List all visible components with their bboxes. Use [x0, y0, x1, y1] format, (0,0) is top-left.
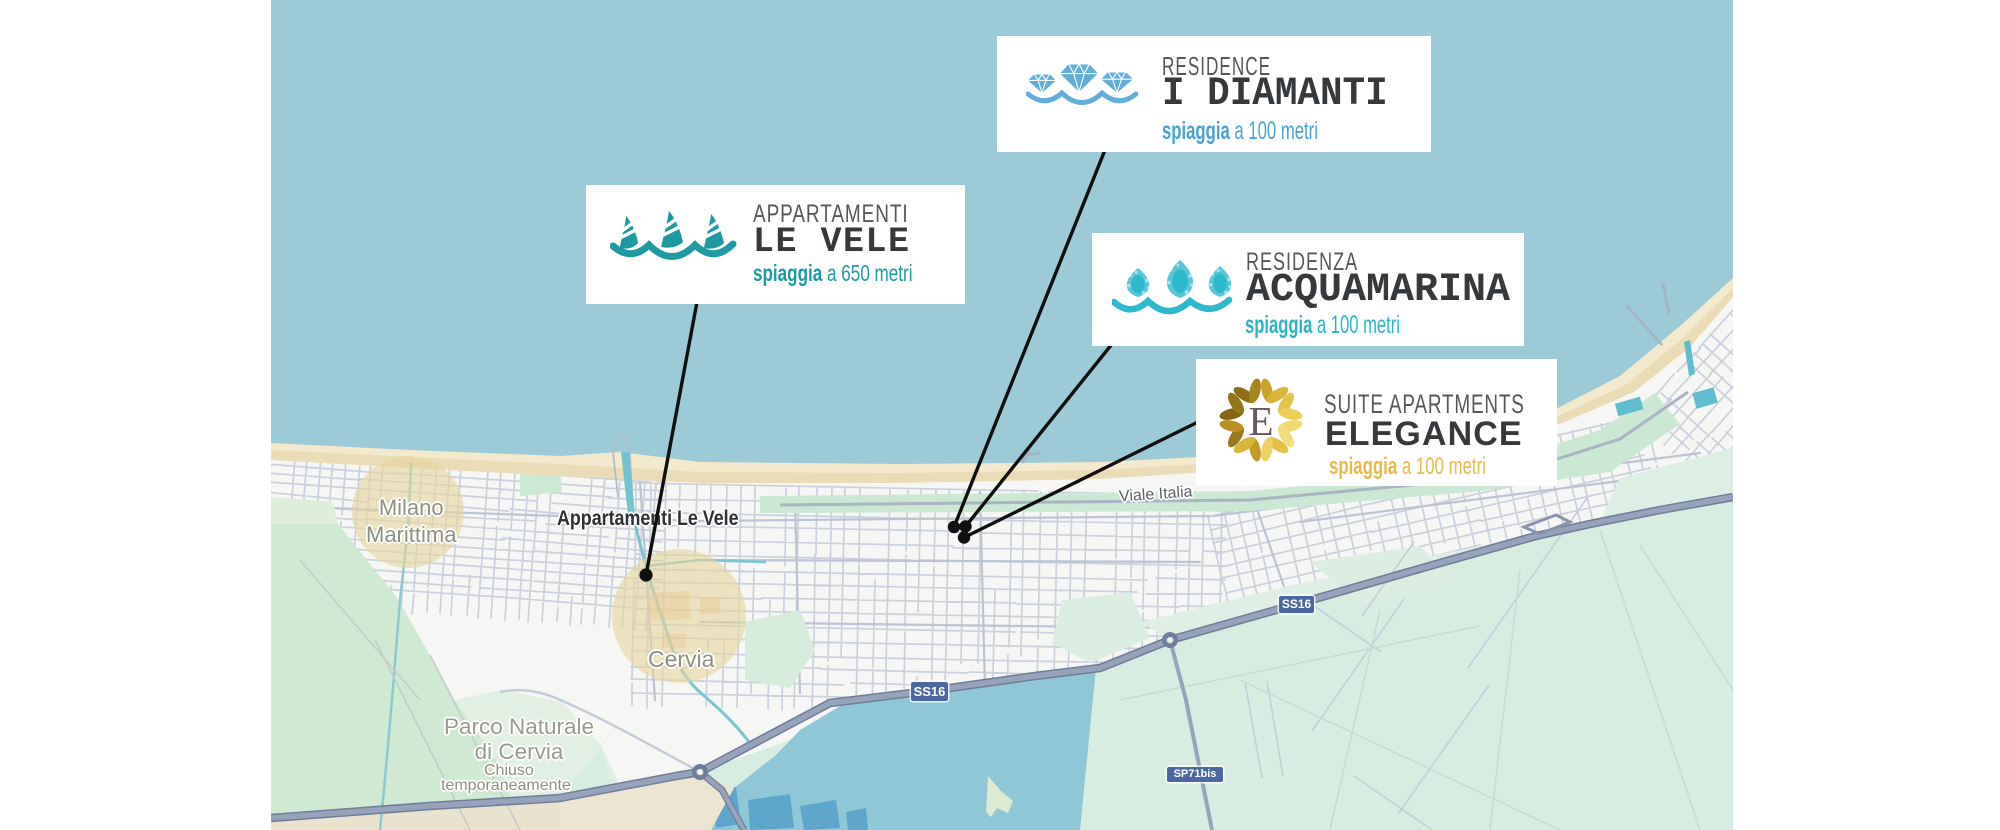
- svg-text:E: E: [1248, 398, 1273, 444]
